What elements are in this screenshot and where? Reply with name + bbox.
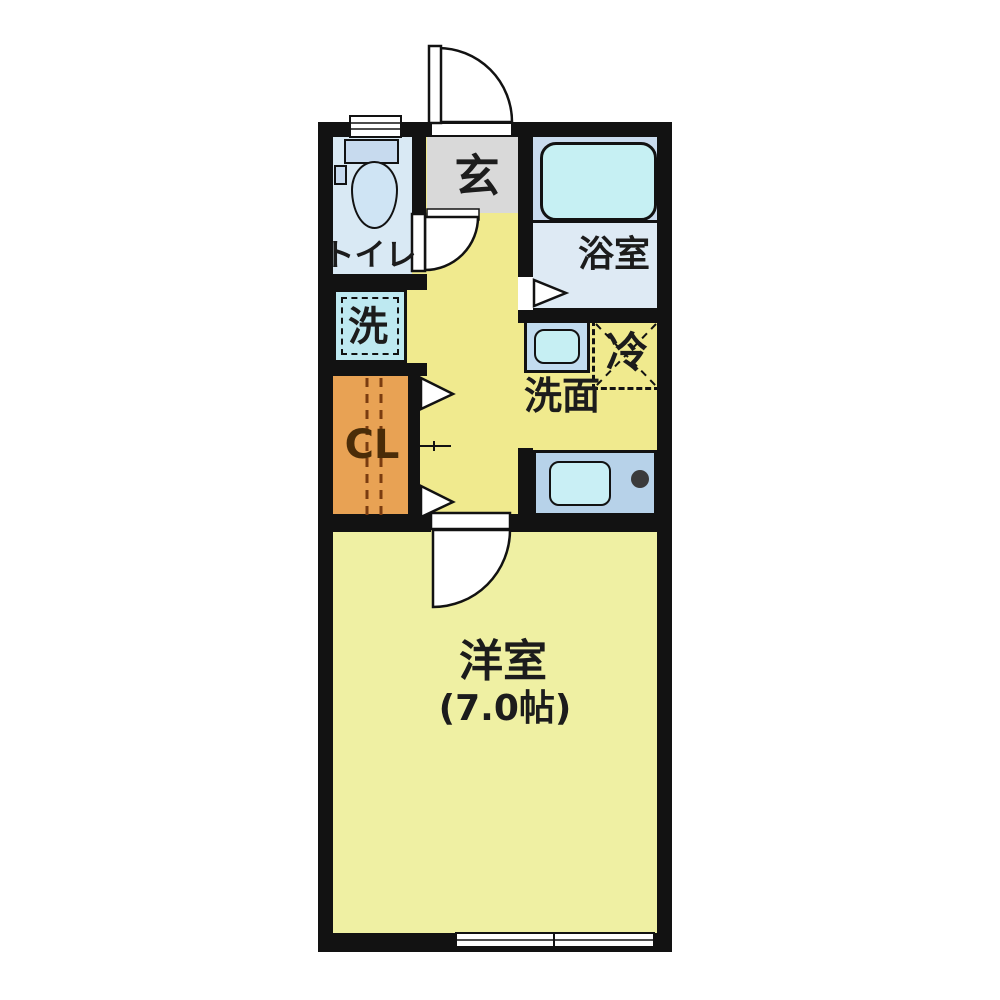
entrance-door-swing	[438, 48, 512, 122]
wall-closet-right	[408, 376, 420, 517]
wall-kitchen-stub	[518, 448, 533, 518]
main-room-size-label: (7.0帖)	[439, 691, 572, 727]
floor-plan: 玄 トイレ 浴室 洗 CL 洗面 冷 洋室 (7.0帖)	[0, 0, 1000, 1000]
bath-label: 浴室	[578, 237, 650, 273]
washer-label: 洗	[348, 307, 388, 347]
wall-mainroom-left-segment	[318, 514, 431, 532]
wall-toilet-bottom	[333, 274, 427, 290]
entrance-door-leaf	[429, 46, 441, 123]
wall-bottom	[318, 933, 672, 952]
wall-toilet-right	[412, 137, 426, 217]
wall-bath-left	[518, 137, 533, 278]
wall-above-closet	[333, 363, 427, 376]
burner-icon	[631, 470, 649, 488]
wall-bath-bottom	[518, 308, 672, 323]
toilet-flush-handle-icon	[334, 165, 347, 185]
wall-top	[318, 122, 672, 137]
main-room-floor	[333, 532, 657, 933]
bathtub-icon	[540, 142, 657, 221]
washbasin-bowl-icon	[534, 329, 580, 364]
toilet-label: トイレ	[324, 241, 417, 272]
wall-mainroom-right-segment	[511, 514, 672, 532]
kitchen-sink-icon	[549, 461, 611, 506]
closet-label: CL	[345, 425, 400, 465]
wall-right	[657, 122, 672, 952]
entrance-label: 玄	[454, 154, 499, 199]
washroom-label: 洗面	[524, 377, 600, 415]
main-room-label: 洋室	[459, 640, 547, 684]
fridge-label: 冷	[606, 332, 648, 374]
